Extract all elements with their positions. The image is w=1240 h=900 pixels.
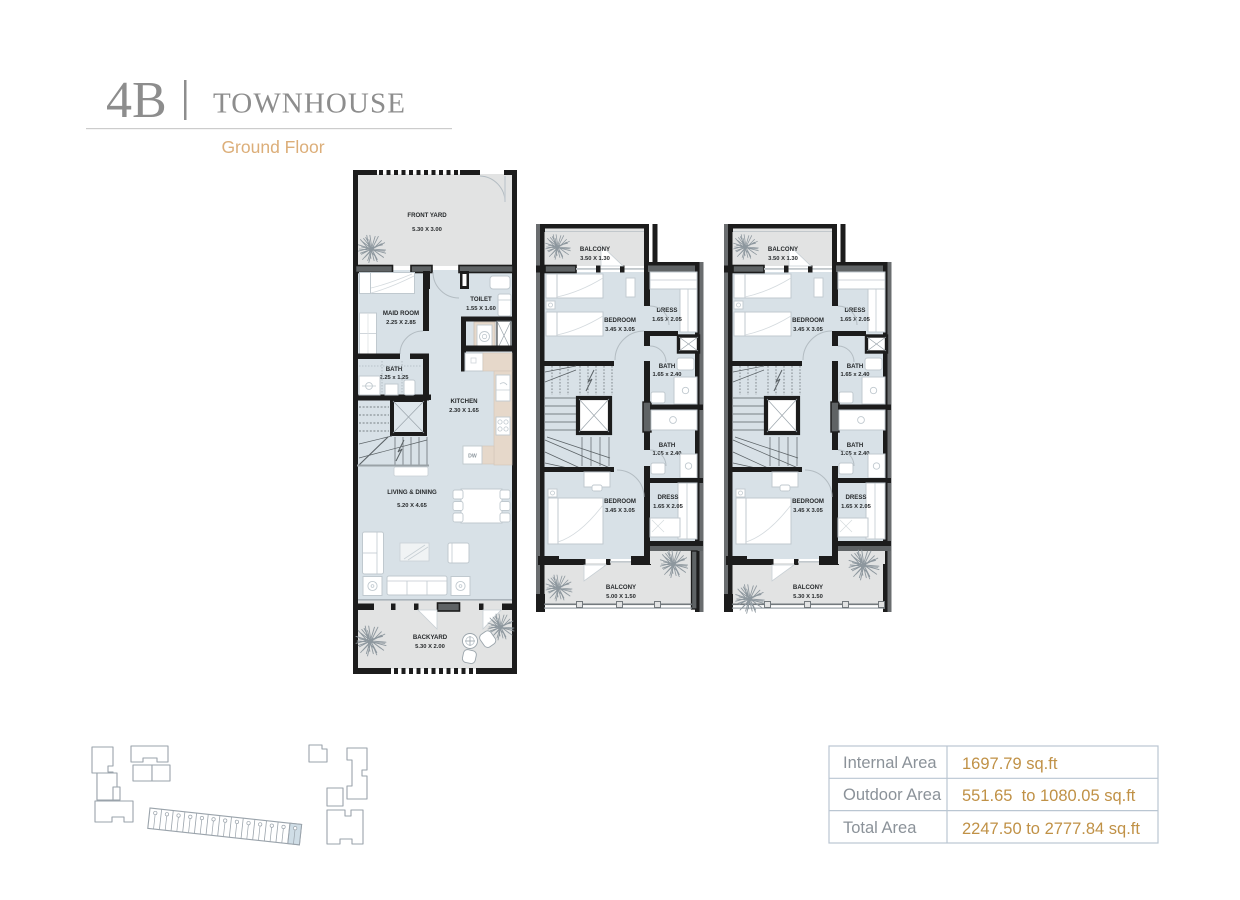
svg-text:4B: 4B [106,72,167,129]
svg-text:3.45 X 3.05: 3.45 X 3.05 [793,508,823,514]
svg-text:1.55 X 1.60: 1.55 X 1.60 [466,306,496,312]
svg-text:FRONT YARD: FRONT YARD [407,212,447,219]
svg-text:BEDROOM: BEDROOM [792,498,824,505]
svg-text:BALCONY: BALCONY [793,584,823,591]
svg-text:BACKYARD: BACKYARD [413,634,448,641]
svg-text:Outdoor Area: Outdoor Area [843,786,942,804]
svg-text:BALCONY: BALCONY [768,246,798,253]
svg-text:5.00 X 1.50: 5.00 X 1.50 [606,594,636,600]
svg-text:Internal Area: Internal Area [843,754,937,772]
svg-text:BATH: BATH [847,442,863,449]
svg-text:2247.50 to 2777.84 sq.ft: 2247.50 to 2777.84 sq.ft [962,820,1140,838]
svg-text:BALCONY: BALCONY [580,246,610,253]
svg-text:3.50 X 1.30: 3.50 X 1.30 [768,256,798,262]
svg-text:BATH: BATH [847,363,863,370]
svg-text:LIVING & DINING: LIVING & DINING [387,489,437,496]
svg-text:1.65 X 2.05: 1.65 X 2.05 [841,504,871,510]
svg-text:3.45 X 3.05: 3.45 X 3.05 [793,327,823,333]
svg-text:551.65 to 1080.05 sq.ft: 551.65 to 1080.05 sq.ft [962,787,1136,805]
svg-text:2.30 X 1.65: 2.30 X 1.65 [449,408,479,414]
svg-text:DRESS: DRESS [658,494,679,501]
svg-text:TOILET: TOILET [470,296,492,303]
svg-text:3.45 X 3.05: 3.45 X 3.05 [605,508,635,514]
svg-text:BEDROOM: BEDROOM [604,317,636,324]
svg-text:BEDROOM: BEDROOM [792,317,824,324]
svg-text:BEDROOM: BEDROOM [604,498,636,505]
svg-text:5.30 X 1.50: 5.30 X 1.50 [793,594,823,600]
svg-text:KITCHEN: KITCHEN [450,398,477,405]
svg-text:5.20 X 4.65: 5.20 X 4.65 [397,503,427,509]
svg-text:BATH: BATH [659,442,675,449]
svg-text:3.45 X 3.05: 3.45 X 3.05 [605,327,635,333]
svg-text:Ground Floor: Ground Floor [221,137,324,157]
svg-text:1697.79 sq.ft: 1697.79 sq.ft [962,755,1058,773]
svg-text:BATH: BATH [659,363,675,370]
svg-text:DW: DW [468,454,477,460]
svg-text:5.30 X 3.00: 5.30 X 3.00 [412,227,442,233]
svg-text:MAID ROOM: MAID ROOM [383,310,419,317]
svg-text:TOWNHOUSE: TOWNHOUSE [213,88,406,120]
svg-text:5.30 X 2.00: 5.30 X 2.00 [415,644,445,650]
svg-text:DRESS: DRESS [846,494,867,501]
svg-text:Total Area: Total Area [843,819,917,837]
svg-text:3.50 X 1.30: 3.50 X 1.30 [580,256,610,262]
svg-text:2.25 X 2.85: 2.25 X 2.85 [386,320,416,326]
svg-text:BATH: BATH [386,366,402,373]
svg-text:BALCONY: BALCONY [606,584,636,591]
svg-text:1.65 X 2.05: 1.65 X 2.05 [653,504,683,510]
